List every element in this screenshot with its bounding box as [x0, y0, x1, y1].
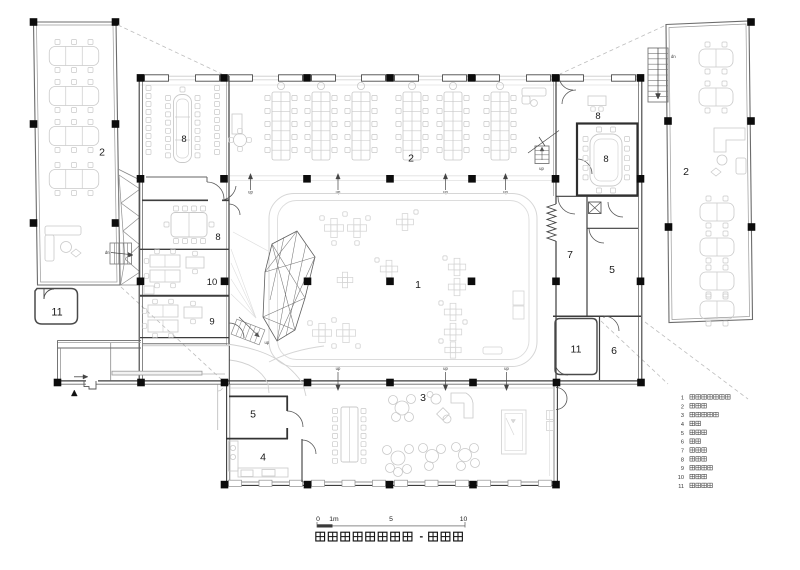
- svg-text:2: 2: [408, 153, 414, 165]
- svg-text:9: 9: [681, 466, 684, 472]
- svg-text:7: 7: [681, 449, 684, 455]
- svg-text:dn: dn: [105, 250, 110, 255]
- svg-text:3: 3: [681, 413, 684, 419]
- svg-text:up: up: [248, 190, 253, 195]
- svg-text:10: 10: [460, 516, 468, 523]
- svg-text:2: 2: [683, 166, 689, 178]
- svg-text:up: up: [539, 166, 544, 171]
- svg-text:0: 0: [316, 516, 320, 523]
- svg-text:4: 4: [260, 452, 266, 464]
- svg-text:7: 7: [567, 249, 573, 261]
- svg-text:5: 5: [609, 264, 615, 276]
- svg-text:8: 8: [595, 111, 600, 122]
- svg-text:1: 1: [415, 279, 421, 291]
- svg-text:2: 2: [99, 147, 105, 159]
- svg-text:6: 6: [681, 440, 684, 446]
- svg-text:11: 11: [571, 344, 582, 356]
- svg-text:8: 8: [603, 154, 608, 165]
- svg-text:up: up: [336, 366, 341, 371]
- svg-text:11: 11: [678, 484, 684, 490]
- svg-text:-: -: [420, 531, 424, 543]
- svg-text:5: 5: [681, 431, 684, 437]
- svg-text:up: up: [443, 366, 448, 371]
- svg-text:6: 6: [611, 345, 617, 357]
- svg-text:5: 5: [389, 516, 393, 523]
- svg-text:8: 8: [215, 232, 220, 243]
- svg-text:8: 8: [181, 134, 186, 145]
- svg-text:5: 5: [250, 409, 256, 421]
- svg-text:8: 8: [681, 457, 684, 463]
- svg-text:dn: dn: [671, 54, 676, 59]
- svg-text:3: 3: [420, 392, 426, 404]
- svg-text:1m: 1m: [329, 516, 339, 523]
- svg-text:up: up: [265, 340, 270, 345]
- svg-text:11: 11: [51, 307, 62, 319]
- svg-text:9: 9: [209, 317, 214, 328]
- svg-text:up: up: [504, 366, 509, 371]
- svg-text:4: 4: [681, 422, 684, 428]
- svg-text:1: 1: [681, 395, 684, 401]
- svg-text:10: 10: [207, 277, 218, 288]
- svg-text:2: 2: [681, 404, 684, 410]
- svg-text:10: 10: [678, 475, 684, 481]
